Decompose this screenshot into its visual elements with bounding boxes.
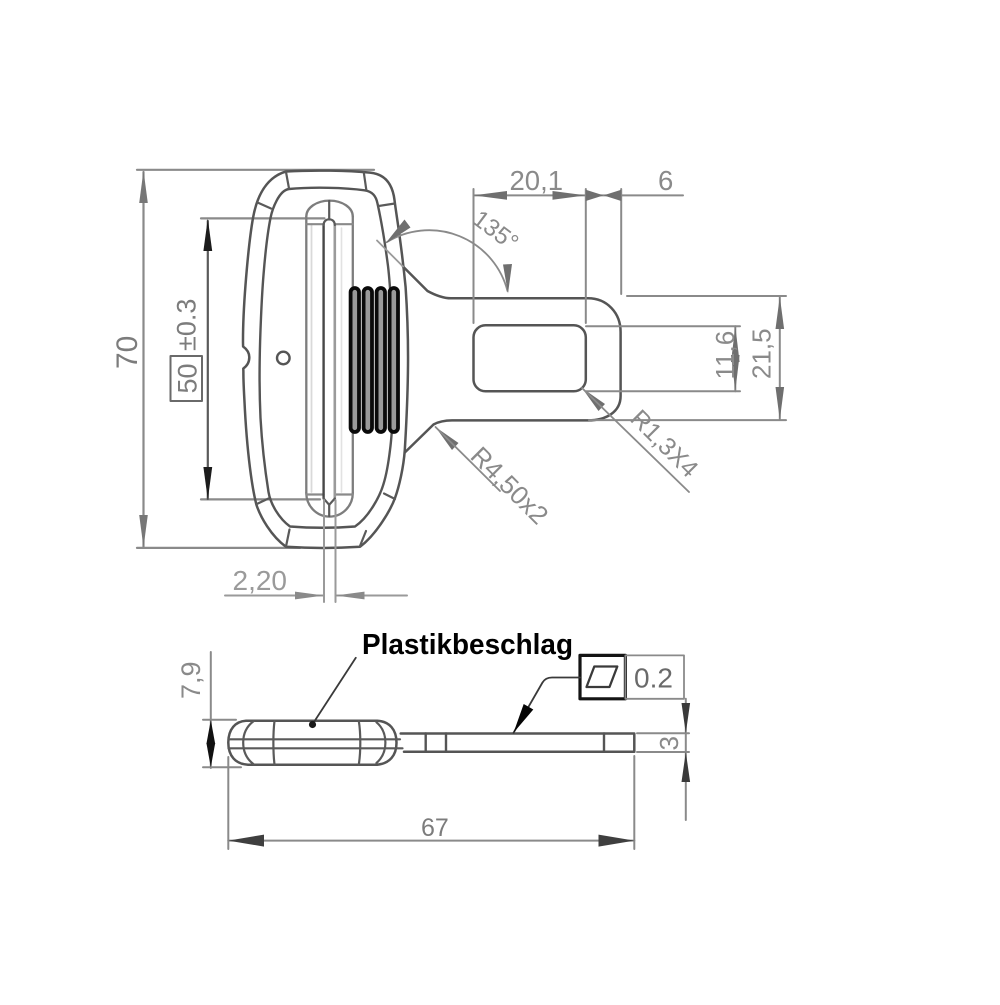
svg-text:±0.3: ±0.3 [172, 299, 202, 351]
svg-text:21,5: 21,5 [747, 328, 777, 379]
svg-text:20,1: 20,1 [510, 165, 564, 196]
svg-text:7,9: 7,9 [176, 661, 206, 699]
svg-text:11,6: 11,6 [710, 331, 740, 380]
svg-text:R4,50x2: R4,50x2 [465, 441, 555, 531]
svg-text:135°: 135° [467, 205, 523, 256]
svg-text:50: 50 [173, 363, 203, 393]
svg-text:67: 67 [421, 814, 449, 842]
svg-text:0.2: 0.2 [634, 663, 673, 694]
svg-text:3: 3 [654, 736, 684, 750]
svg-text:6: 6 [658, 165, 673, 196]
svg-text:2,20: 2,20 [233, 565, 288, 596]
svg-text:70: 70 [111, 336, 144, 369]
svg-text:R1,3X4: R1,3X4 [625, 404, 704, 483]
svg-text:Plastikbeschlag: Plastikbeschlag [362, 629, 573, 661]
